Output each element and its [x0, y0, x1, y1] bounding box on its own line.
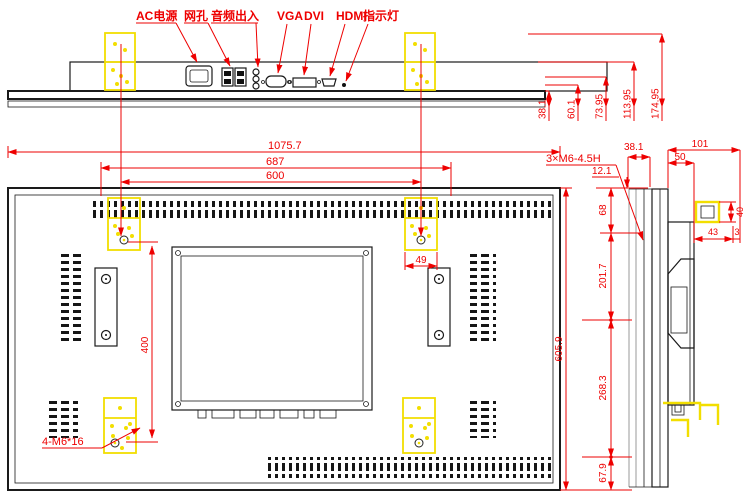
dim-height-chain: 68 201.7 268.3 67.9: [560, 188, 648, 490]
mount-plate-inner: [671, 287, 687, 333]
top-view: [8, 62, 607, 107]
top-view-right-mount-highlight: [405, 33, 435, 90]
label-audio: 音频出入: [211, 8, 259, 23]
left-lower-vents: [48, 398, 78, 438]
opening-screw: [364, 402, 369, 407]
leader-indicator: [346, 24, 368, 81]
right-upper-vents: [470, 253, 496, 345]
dim-offset-12-1: 12.1: [592, 166, 627, 188]
left-upper-vents: [58, 253, 84, 345]
svg-text:12.1: 12.1: [592, 166, 612, 177]
leader-hdmi: [330, 24, 345, 76]
dim-bracket-49: 49: [405, 252, 437, 270]
dim-side-ear-43-3: 43 3: [694, 226, 740, 243]
label-indicator: 指示灯: [363, 8, 399, 23]
side-view-highlights: [663, 202, 719, 437]
dim-height-605-9: 605.9: [554, 188, 572, 490]
vesa-bracket-bottom-right: [403, 398, 435, 453]
dim-vesa-400: 400: [126, 242, 158, 442]
leader-lan: [208, 23, 230, 66]
label-dvi: DVI: [304, 9, 324, 23]
engineering-drawing-page: AC电源 网孔 音频出入 VGA DVI HDMI 指示灯 38.1 60.1: [0, 0, 746, 499]
svg-text:4-M6*16: 4-M6*16: [42, 436, 84, 448]
center-opening-inner: [181, 256, 363, 401]
hdmi-connector: [322, 79, 336, 86]
svg-text:3×M6-4.5H: 3×M6-4.5H: [546, 153, 601, 165]
lan-ports: [222, 68, 246, 86]
dim-268-3: 268.3: [598, 375, 609, 400]
indicator-led: [342, 83, 346, 87]
label-vga: VGA: [277, 9, 303, 23]
svg-text:174.95: 174.95: [651, 88, 662, 119]
dim-width-600: 600: [121, 170, 421, 182]
center-opening-outer: [172, 247, 372, 410]
svg-text:3: 3: [734, 227, 739, 237]
opening-screw: [176, 402, 181, 407]
opening-screw: [364, 251, 369, 256]
side-top-ear-highlight: [696, 202, 719, 222]
left-mounting-rail: [95, 268, 117, 346]
svg-text:38.1: 38.1: [538, 99, 549, 119]
right-lower-vents: [470, 398, 496, 438]
svg-text:400: 400: [140, 336, 151, 353]
leader-audio: [256, 23, 258, 67]
top-mounting-ear: [696, 202, 719, 222]
label-lan: 网孔: [184, 9, 208, 23]
bottom-vent-strip: [265, 457, 555, 478]
right-mounting-rail: [428, 268, 450, 346]
leader-dvi: [304, 24, 311, 75]
svg-text:49: 49: [415, 255, 427, 266]
svg-text:60.1: 60.1: [567, 99, 578, 119]
bottom-notch: [672, 405, 684, 415]
top-view-left-mount-highlight: [105, 33, 135, 90]
leader-vga: [278, 24, 287, 73]
svg-text:38.1: 38.1: [624, 142, 644, 153]
top-vent-strip: [90, 201, 555, 221]
label-ac-power: AC电源: [136, 8, 177, 23]
svg-text:605.9: 605.9: [554, 336, 565, 361]
bottom-connector-row: [198, 410, 336, 418]
leader-ac: [176, 23, 197, 62]
svg-text:43: 43: [708, 227, 718, 237]
svg-text:40: 40: [735, 207, 745, 217]
svg-text:50: 50: [674, 152, 686, 163]
vga-connector: [262, 76, 291, 87]
svg-text:113.95: 113.95: [623, 89, 634, 119]
ac-power-socket: [186, 66, 212, 86]
opening-screw: [176, 251, 181, 256]
side-view: [629, 189, 719, 487]
dim-depth-38-1: 38.1: [538, 91, 550, 121]
dim-side-bezel-38-1: 38.1: [624, 142, 650, 187]
svg-text:101: 101: [692, 139, 709, 150]
top-view-rear-casing: [70, 62, 607, 91]
monitor-three-view-drawing: AC电源 网孔 音频出入 VGA DVI HDMI 指示灯 38.1 60.1: [0, 0, 746, 499]
audio-jacks: [253, 69, 259, 89]
top-view-bezel-band: [8, 91, 545, 99]
dim-68: 68: [598, 204, 609, 216]
dim-201-7: 201.7: [598, 263, 609, 288]
svg-text:1075.7: 1075.7: [268, 140, 302, 152]
svg-text:600: 600: [266, 170, 284, 182]
svg-text:73.95: 73.95: [595, 94, 606, 119]
svg-text:687: 687: [266, 156, 284, 168]
dim-67-9: 67.9: [598, 463, 609, 483]
dvi-connector: [289, 78, 321, 87]
back-view: [8, 188, 560, 490]
top-view-front-lip: [8, 101, 545, 107]
dim-side-ear-40: 40: [719, 202, 745, 222]
